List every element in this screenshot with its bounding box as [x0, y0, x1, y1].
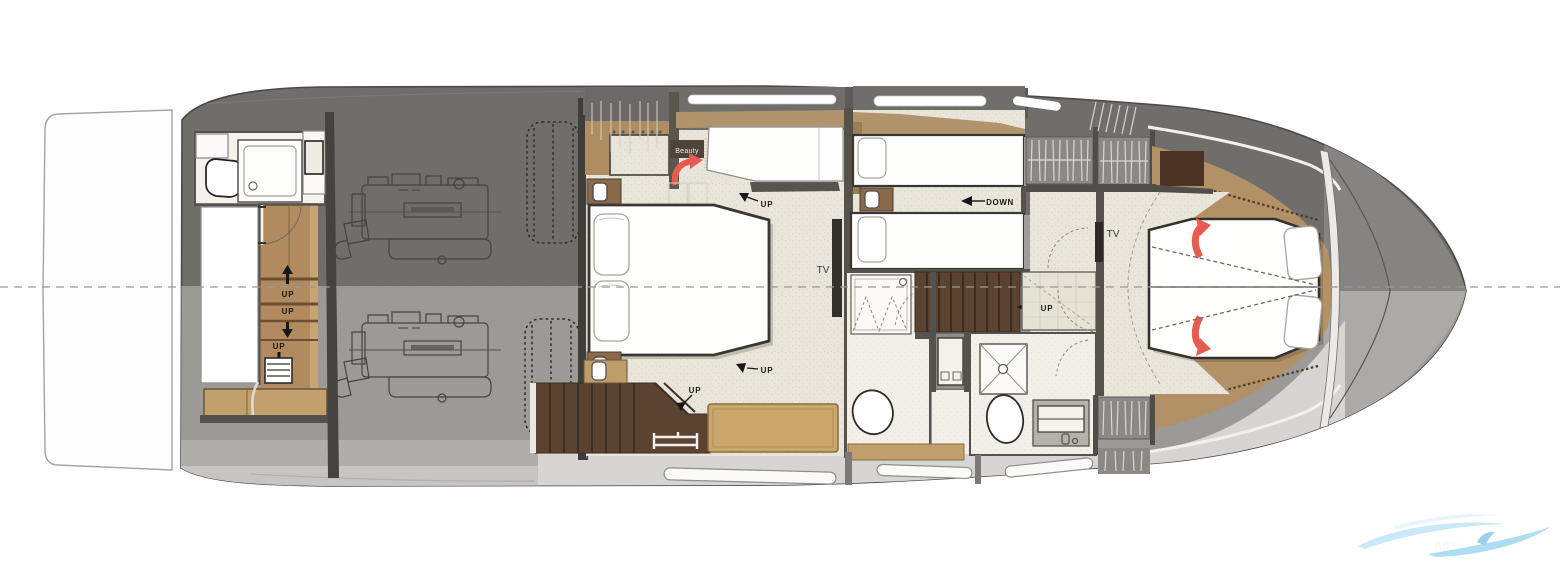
svg-text:UP: UP [1041, 304, 1054, 313]
svg-text:Beauty: Beauty [675, 148, 699, 155]
svg-text:TV: TV [817, 265, 830, 276]
svg-text:DOWN: DOWN [986, 198, 1014, 207]
svg-text:ROW: ROW [1434, 541, 1461, 552]
svg-text:UP: UP [761, 366, 774, 375]
svg-text:TV: TV [1107, 229, 1120, 240]
svg-text:UP: UP [282, 290, 295, 299]
svg-text:UP: UP [282, 307, 295, 316]
svg-text:UP: UP [761, 200, 774, 209]
svg-text:UP: UP [273, 342, 286, 351]
svg-text:UP: UP [689, 386, 702, 395]
